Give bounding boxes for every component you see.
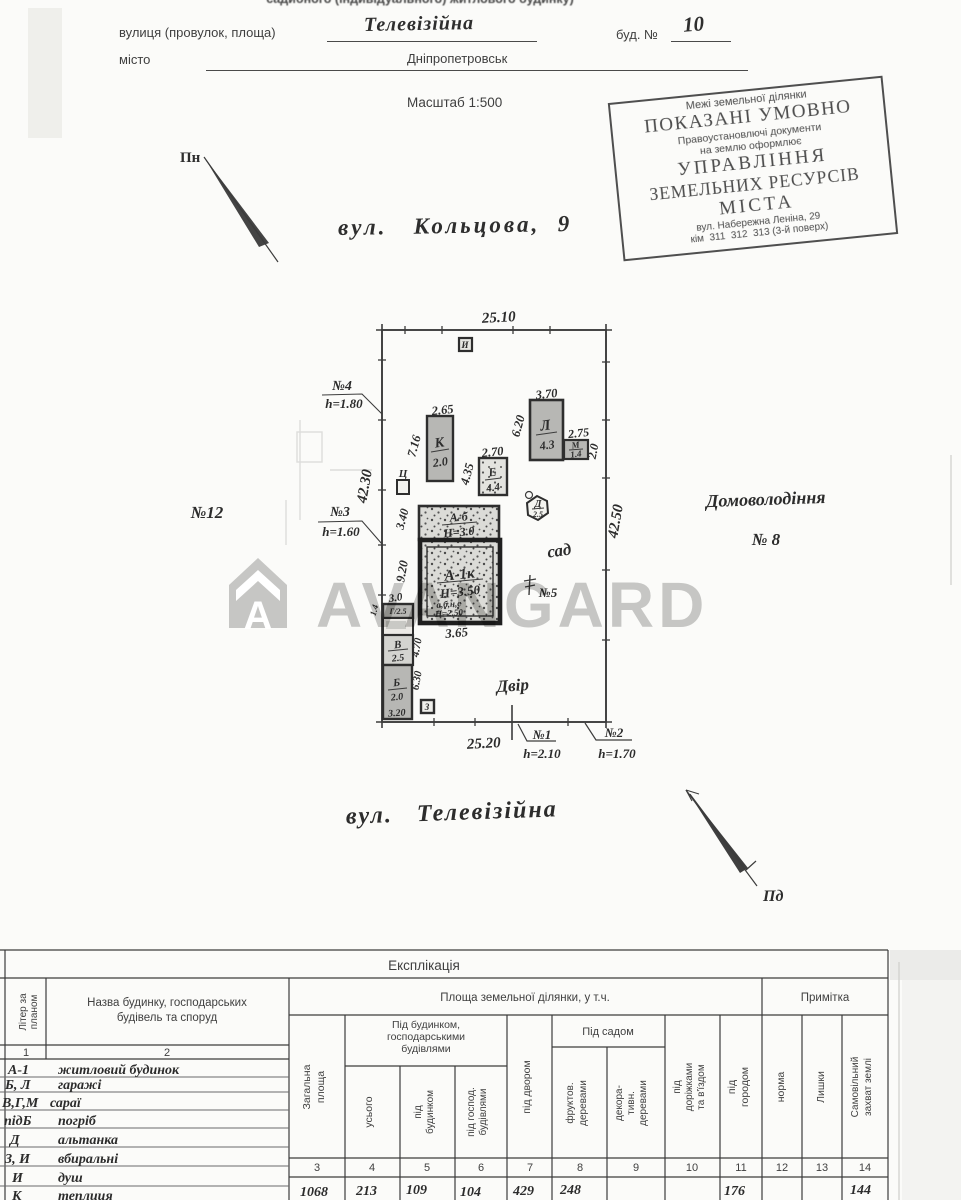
svg-text:Б, Л: Б, Л <box>4 1078 31 1093</box>
svg-text:1: 1 <box>23 1047 29 1059</box>
svg-text:З: З <box>424 702 430 712</box>
svg-text:Лишки: Лишки <box>815 1071 827 1103</box>
svg-text:7: 7 <box>527 1162 533 1174</box>
svg-text:144: 144 <box>850 1183 871 1198</box>
svg-text:42.30: 42.30 <box>354 468 376 505</box>
svg-text:вбиральні: вбиральні <box>58 1152 118 1167</box>
svg-text:AVANGARD: AVANGARD <box>316 569 708 641</box>
svg-text:10: 10 <box>686 1162 698 1174</box>
svg-text:6.30: 6.30 <box>409 669 424 691</box>
svg-text:3.20: 3.20 <box>387 707 406 719</box>
svg-text:№4: №4 <box>331 379 352 394</box>
svg-text:К: К <box>11 1189 23 1200</box>
svg-text:теплиця: теплиця <box>58 1189 113 1200</box>
svg-text:вул. Телевізійна: вул. Телевізійна <box>345 796 558 829</box>
svg-text:3.40: 3.40 <box>392 507 411 532</box>
svg-text:планом: планом <box>29 994 40 1029</box>
svg-text:захват землі: захват землі <box>863 1058 874 1116</box>
svg-text:176: 176 <box>724 1184 745 1199</box>
svg-text:2.0: 2.0 <box>431 454 449 470</box>
svg-text:душ: душ <box>58 1171 83 1186</box>
svg-text:будинком: будинком <box>424 1090 436 1134</box>
svg-text:И: И <box>11 1171 24 1186</box>
svg-text:А-1: А-1 <box>7 1063 29 1078</box>
svg-text:25.10: 25.10 <box>481 309 517 327</box>
svg-text:№12: №12 <box>190 503 224 522</box>
svg-text:2.0: 2.0 <box>584 442 601 461</box>
svg-text:9: 9 <box>633 1162 639 1174</box>
svg-text:№2: №2 <box>604 725 624 740</box>
svg-text:429: 429 <box>512 1184 534 1199</box>
svg-text:2.65: 2.65 <box>430 402 454 418</box>
svg-text:В,Г,М: В,Г,М <box>1 1096 39 1111</box>
svg-text:Б: Б <box>392 677 401 690</box>
svg-text:під господ.: під господ. <box>466 1087 477 1137</box>
svg-text:1068: 1068 <box>300 1185 328 1200</box>
svg-text:під: під <box>413 1105 424 1119</box>
svg-text:площа: площа <box>315 1071 327 1103</box>
svg-text:під: під <box>726 1080 738 1094</box>
svg-text:2: 2 <box>164 1047 170 1059</box>
svg-text:будівлями: будівлями <box>401 1043 451 1055</box>
svg-text:Д: Д <box>8 1133 20 1148</box>
svg-text:11: 11 <box>735 1162 746 1174</box>
svg-text:сад: сад <box>546 539 573 561</box>
svg-text:h=1.70: h=1.70 <box>598 746 636 761</box>
svg-text:4: 4 <box>369 1162 375 1174</box>
svg-text:h=1.80: h=1.80 <box>325 396 363 411</box>
svg-text:городом: городом <box>739 1067 751 1107</box>
svg-text:тивн.: тивн. <box>626 1091 637 1115</box>
svg-text:2.5: 2.5 <box>532 510 543 519</box>
svg-text:та в'їздом: та в'їздом <box>696 1064 707 1110</box>
svg-text:Двір: Двір <box>494 675 530 696</box>
svg-text:Під садом: Під садом <box>582 1026 634 1038</box>
svg-text:1.4: 1.4 <box>570 448 583 460</box>
svg-text:3.70: 3.70 <box>534 386 559 402</box>
svg-text:5: 5 <box>424 1162 430 1174</box>
svg-text:3: 3 <box>314 1162 320 1174</box>
svg-text:h=1.60: h=1.60 <box>322 524 360 539</box>
svg-text:житловий будинок: житловий будинок <box>58 1063 180 1078</box>
svg-text:під двором: під двором <box>521 1060 533 1113</box>
svg-text:109: 109 <box>406 1183 427 1198</box>
svg-text:фруктов.: фруктов. <box>564 1082 576 1123</box>
svg-text:25.20: 25.20 <box>466 735 502 753</box>
svg-text:6: 6 <box>478 1162 484 1174</box>
svg-text:під: під <box>672 1080 683 1094</box>
svg-text:Літер за: Літер за <box>18 993 29 1031</box>
svg-text:4.35: 4.35 <box>457 462 476 488</box>
svg-text:Примітка: Примітка <box>801 992 850 1004</box>
svg-text:Загальна: Загальна <box>301 1064 313 1109</box>
svg-text:Площа земельної ділянки, у т.ч: Площа земельної ділянки, у т.ч. <box>440 992 610 1004</box>
svg-text:деревами: деревами <box>638 1080 649 1126</box>
svg-text:2.5: 2.5 <box>390 652 405 664</box>
svg-text:7.16: 7.16 <box>405 433 424 458</box>
svg-text:Експлікація: Експлікація <box>388 958 460 973</box>
svg-text:8: 8 <box>577 1162 583 1174</box>
svg-text:14: 14 <box>859 1162 871 1174</box>
svg-text:№1: №1 <box>532 727 551 742</box>
svg-text:сараї: сараї <box>50 1096 82 1111</box>
svg-text:2.0: 2.0 <box>389 691 404 703</box>
svg-text:2.70: 2.70 <box>480 444 505 460</box>
svg-text:будівель та споруд: будівель та споруд <box>117 1012 218 1024</box>
svg-text:усього: усього <box>363 1096 375 1127</box>
svg-text:4.3: 4.3 <box>538 437 556 453</box>
svg-text:Ц: Ц <box>398 468 408 480</box>
svg-text:104: 104 <box>460 1185 481 1200</box>
svg-text:4.4: 4.4 <box>485 481 502 495</box>
svg-text:Домоволодіння: Домоволодіння <box>704 487 826 511</box>
svg-text:248: 248 <box>559 1183 581 1198</box>
svg-text:213: 213 <box>355 1184 377 1199</box>
svg-text:13: 13 <box>816 1162 828 1174</box>
svg-text:Назва будинку, господарських: Назва будинку, господарських <box>87 997 247 1009</box>
svg-text:2.75: 2.75 <box>566 425 589 441</box>
svg-text:З, И: З, И <box>4 1152 31 1167</box>
svg-text:12: 12 <box>776 1162 788 1174</box>
svg-text:И: И <box>460 340 469 350</box>
svg-text:погріб: погріб <box>58 1114 97 1129</box>
svg-text:будівлями: будівлями <box>477 1088 489 1135</box>
svg-text:Самовільний: Самовільний <box>850 1057 861 1118</box>
svg-text:підБ: підБ <box>4 1114 32 1129</box>
svg-text:господарськими: господарськими <box>387 1031 465 1043</box>
svg-text:42.50: 42.50 <box>605 503 627 540</box>
svg-text:№3: №3 <box>329 505 350 520</box>
svg-text:6.20: 6.20 <box>509 413 528 438</box>
svg-text:h=2.10: h=2.10 <box>523 746 561 761</box>
svg-text:A: A <box>244 594 273 638</box>
svg-text:доріжками: доріжками <box>684 1063 695 1112</box>
svg-text:Пд: Пд <box>762 888 783 905</box>
svg-text:гаражі: гаражі <box>58 1078 101 1093</box>
svg-text:Під будинком,: Під будинком, <box>392 1019 460 1031</box>
svg-text:альтанка: альтанка <box>58 1133 118 1148</box>
svg-text:№ 8: № 8 <box>751 530 781 549</box>
svg-text:деревами: деревами <box>578 1080 589 1126</box>
svg-text:норма: норма <box>775 1072 787 1103</box>
svg-text:декора-: декора- <box>614 1085 625 1121</box>
